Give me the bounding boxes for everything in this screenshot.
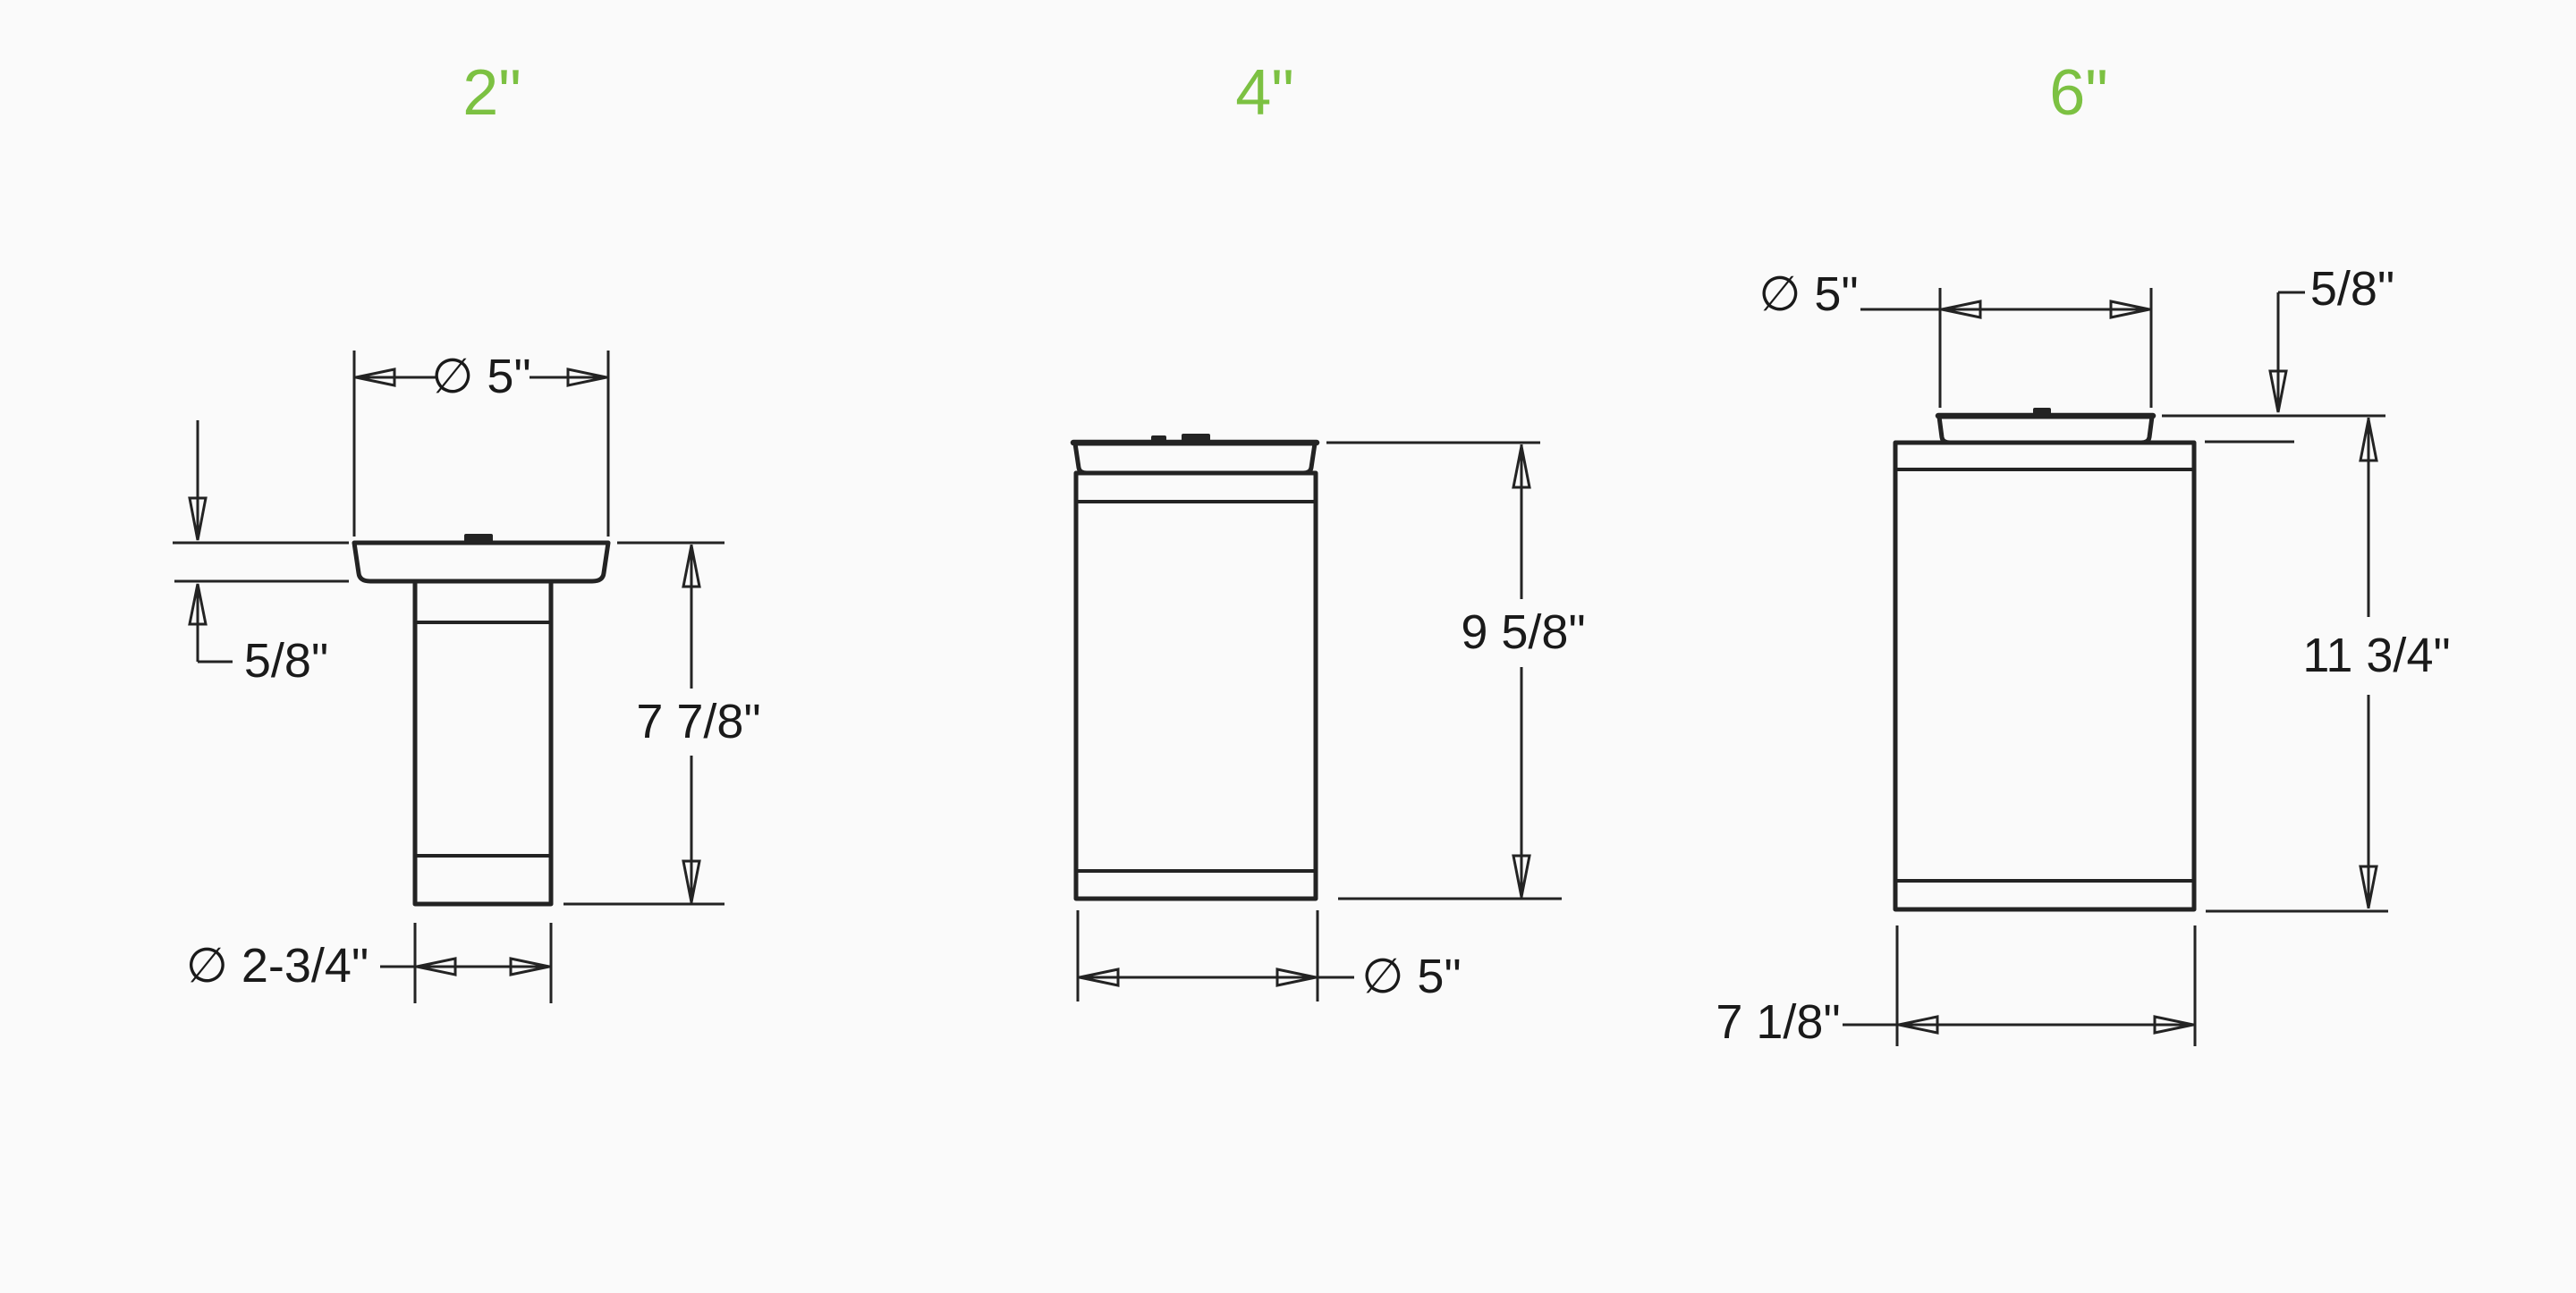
dim-4in-bottom-diameter: ∅ 5" [1078, 910, 1462, 1003]
canopy-plate [1939, 417, 2152, 443]
dim-2in-bottom-diameter: ∅ 2-3/4" [186, 923, 551, 1003]
drawing-4in: 4" 9 5/8" ∅ 5" [1073, 57, 1586, 1003]
mounting-nub [2033, 408, 2051, 417]
cylinder-body [1895, 443, 2194, 909]
mounting-nub [464, 534, 493, 543]
dim-label-bottom-diameter: ∅ 2-3/4" [186, 939, 369, 993]
dim-2in-height: 7 7/8" [563, 543, 761, 904]
fixture-2in-outline [354, 534, 608, 904]
dim-6in-canopy-offset: 5/8" [2162, 262, 2394, 442]
canopy-plate [354, 543, 608, 581]
drawing-2in: 2" ∅ 5" 5/8" [173, 57, 761, 1003]
drawing-4in-title: 4" [1235, 57, 1294, 129]
spec-drawing-sheet: 2" ∅ 5" 5/8" [0, 0, 2576, 1293]
dim-label-bottom-diameter: ∅ 5" [1361, 950, 1461, 1003]
dim-2in-canopy-thickness: 5/8" [173, 420, 349, 688]
dim-6in-bottom-width: 7 1/8" [1716, 925, 2195, 1049]
mounting-nub [1151, 435, 1166, 444]
drawing-2in-title: 2" [462, 57, 521, 129]
dim-label-canopy-offset: 5/8" [2310, 262, 2394, 316]
fixture-6in-outline [1895, 408, 2194, 909]
dim-label-height: 11 3/4" [2302, 629, 2450, 682]
dim-6in-top-diameter: ∅ 5" [1758, 267, 2151, 408]
canopy-plate [1075, 444, 1315, 473]
dim-label-height: 7 7/8" [636, 695, 760, 748]
dim-label-height: 9 5/8" [1461, 605, 1585, 659]
mounting-nub [1182, 434, 1210, 444]
dim-4in-height: 9 5/8" [1326, 443, 1586, 899]
drawing-6in: 6" ∅ 5" 5/8" [1716, 57, 2450, 1049]
cylinder-body [1076, 473, 1316, 899]
dim-2in-top-diameter: ∅ 5" [354, 350, 608, 537]
dim-label-canopy-thickness: 5/8" [244, 634, 328, 688]
drawing-6in-title: 6" [2049, 57, 2108, 129]
technical-drawing-canvas: 2" ∅ 5" 5/8" [0, 0, 2576, 1293]
dim-label-top-diameter: ∅ 5" [431, 350, 530, 403]
dim-label-bottom-width: 7 1/8" [1716, 995, 1840, 1049]
fixture-4in-outline [1073, 434, 1317, 899]
dim-label-top-diameter: ∅ 5" [1758, 267, 1858, 321]
dim-6in-height: 11 3/4" [2206, 418, 2451, 911]
